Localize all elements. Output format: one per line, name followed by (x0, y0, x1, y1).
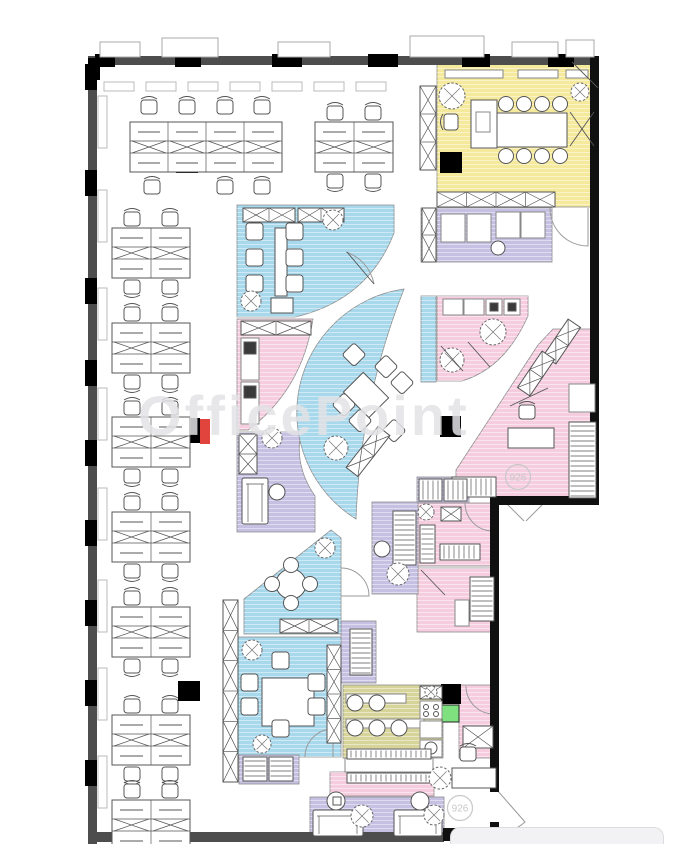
box-symbol (490, 303, 498, 311)
window (512, 42, 558, 57)
box-symbol (333, 797, 341, 805)
chair-seat (162, 564, 178, 578)
chair-back (124, 398, 140, 401)
column (85, 600, 97, 626)
chair-back (162, 493, 178, 496)
rack-symbol (420, 525, 435, 563)
chair-seat (272, 720, 289, 737)
sill (356, 82, 386, 91)
chair-symbol (217, 177, 233, 195)
chair-seat (254, 180, 270, 194)
cabinet-symbol (420, 701, 442, 719)
chair-seat (124, 784, 140, 798)
chair-back (254, 177, 270, 180)
chair-seat (444, 114, 458, 130)
column (85, 440, 97, 466)
chair-symbol (246, 249, 263, 266)
chair-symbol (124, 209, 140, 227)
rack-symbol (269, 757, 293, 781)
rack-outline (347, 773, 431, 783)
round-table-symbol (269, 484, 285, 500)
chair-seat (241, 698, 258, 715)
round-table-symbol (369, 720, 385, 736)
chair-seat (241, 674, 258, 691)
rack-symbol (569, 422, 596, 498)
door-swing (550, 208, 588, 246)
rack-symbol (347, 749, 431, 759)
chair-symbol (286, 249, 303, 266)
cabinet-symbol (496, 212, 520, 238)
chair-symbol (327, 174, 343, 192)
column (85, 520, 97, 546)
chair-back (365, 189, 381, 192)
chair-symbol (162, 564, 178, 582)
sill (146, 82, 176, 91)
box-symbol (508, 303, 516, 311)
chair-symbol (179, 97, 195, 115)
plant-icon (424, 805, 444, 825)
column (368, 54, 398, 67)
chair-back (124, 696, 140, 699)
chair-seat (124, 375, 140, 389)
shelf-strip-symbol (280, 619, 338, 633)
chair-seat (308, 674, 325, 691)
plant-icon (351, 805, 373, 827)
chair-symbol (124, 493, 140, 511)
chair-symbol (284, 558, 299, 573)
chair-symbol (162, 209, 178, 227)
chair-seat (327, 106, 343, 120)
cabinet-symbol (521, 212, 545, 238)
rack-symbol (470, 577, 494, 621)
chair-symbol (390, 371, 414, 395)
column (85, 680, 97, 706)
chair-symbol (124, 696, 140, 714)
chair-symbol (124, 469, 140, 487)
chair-symbol (141, 97, 157, 115)
plant-icon (425, 686, 437, 698)
sofa-outline (242, 478, 268, 524)
chair-symbol (162, 659, 178, 677)
chair-back (124, 304, 140, 307)
round-table-symbol (391, 720, 407, 736)
chair-back (327, 189, 343, 192)
round-table-symbol (434, 712, 439, 717)
room-shape-blue-shelf-strip (421, 296, 436, 382)
chair-seat (162, 767, 178, 781)
chair-back (124, 493, 140, 496)
chair-symbol (517, 97, 532, 112)
rack-symbol (347, 773, 431, 783)
sill (98, 190, 107, 242)
shelf-strip-symbol (223, 600, 238, 782)
sill (98, 756, 107, 808)
column (178, 681, 200, 701)
chair-symbol (286, 223, 303, 240)
chair-seat (179, 100, 195, 114)
round-table-symbol (347, 695, 363, 711)
round-table-symbol (434, 705, 439, 710)
chair-symbol (124, 659, 140, 677)
column (441, 684, 461, 704)
chair-seat (327, 174, 343, 188)
sill (98, 96, 107, 148)
cabinet-symbol (566, 70, 588, 78)
chair-symbol (162, 696, 178, 714)
chair-seat (162, 401, 178, 415)
cabinet-symbol (420, 721, 442, 738)
chair-back (327, 103, 343, 106)
cabinet-symbol (476, 112, 490, 132)
chair-symbol (327, 103, 343, 121)
rack-outline (419, 479, 442, 501)
chair-symbol (124, 398, 140, 416)
chair-symbol (246, 223, 263, 240)
sill (98, 668, 107, 720)
chair-back (162, 579, 178, 582)
chair-symbol (162, 280, 178, 298)
box-symbol (244, 386, 256, 398)
badge-text: 926 (510, 473, 527, 484)
chair-seat (365, 174, 381, 188)
round-table-symbol (374, 541, 390, 557)
shelf-strip-symbol (243, 208, 295, 222)
rack-outline (269, 757, 293, 781)
chair-seat (124, 564, 140, 578)
table-symbol (452, 768, 496, 788)
cabinet-symbol (467, 214, 491, 242)
chair-symbol (303, 577, 318, 592)
sofa-symbol (242, 478, 268, 524)
chair-symbol (535, 97, 550, 112)
badge-text: 926 (452, 804, 469, 815)
chair-symbol (217, 97, 233, 115)
shelf-strip-symbol (420, 86, 436, 170)
sill (272, 82, 302, 91)
plant-icon (480, 319, 506, 345)
cabinet-symbol (518, 70, 558, 78)
desk-cluster (112, 800, 190, 844)
chair-symbol (308, 698, 325, 715)
chair-seat (124, 767, 140, 781)
chair-seat (246, 249, 263, 266)
chair-seat (162, 784, 178, 798)
rack-outline (393, 511, 416, 565)
plant-icon (241, 291, 261, 311)
chair-back (124, 674, 140, 677)
chair-back (162, 209, 178, 212)
cabinet-symbol (443, 299, 463, 315)
rack-symbol (440, 544, 480, 560)
chair-back (162, 696, 178, 699)
chair-back (162, 304, 178, 307)
chair-symbol (365, 103, 381, 121)
shelf-strip-symbol (239, 434, 257, 474)
chair-seat (254, 100, 270, 114)
cabinet-symbol (464, 299, 484, 315)
round-table-symbol (424, 712, 429, 717)
plant-icon (439, 83, 465, 109)
chair-seat (217, 180, 233, 194)
chair-symbol (308, 674, 325, 691)
chair-symbol (124, 564, 140, 582)
desk-cluster (112, 323, 190, 373)
round-table-symbol (369, 695, 385, 711)
chair-back (124, 390, 140, 393)
chair-seat (124, 496, 140, 510)
chair-symbol (246, 275, 263, 292)
sill (98, 388, 107, 440)
shelf-strip-symbol (241, 321, 311, 335)
room-blue-shelf-strip[interactable] (421, 296, 436, 382)
sill (104, 82, 134, 91)
chair-seat (124, 401, 140, 415)
chair-symbol (499, 149, 514, 164)
chair-symbol (286, 275, 303, 292)
cabinet-symbol (345, 758, 433, 772)
chair-seat (162, 591, 178, 605)
rack-outline (243, 757, 267, 781)
chair-seat (246, 223, 263, 240)
shelf-strip-symbol (327, 645, 341, 743)
plant-icon (324, 436, 348, 460)
chair-seat (162, 469, 178, 483)
table-symbol (271, 298, 293, 313)
chair-seat (124, 307, 140, 321)
chair-back (179, 97, 195, 100)
rack-outline (569, 422, 596, 498)
cabinet-symbol (455, 600, 469, 626)
chair-seat (286, 275, 303, 292)
desk-cluster (112, 715, 190, 765)
rack-symbol (444, 479, 467, 501)
floor-plan: 926926 OfficePoint (0, 0, 680, 844)
column (440, 152, 462, 173)
chair-seat (124, 212, 140, 226)
chair-seat (286, 223, 303, 240)
box-symbol (244, 342, 256, 354)
plant-icon (418, 504, 434, 520)
column (85, 760, 97, 786)
chair-seat (124, 659, 140, 673)
door-swing (341, 568, 369, 596)
chair-symbol (162, 588, 178, 606)
chair-symbol (272, 652, 289, 669)
chair-symbol (254, 97, 270, 115)
sill (188, 82, 218, 91)
chair-symbol (124, 304, 140, 322)
chair-symbol (162, 304, 178, 322)
chair-symbol (254, 177, 270, 195)
chair-seat (141, 100, 157, 114)
window (100, 42, 140, 57)
chair-seat (162, 307, 178, 321)
plant-icon (429, 767, 451, 789)
chair-seat (308, 698, 325, 715)
chair-symbol (535, 149, 550, 164)
chair-symbol (499, 97, 514, 112)
chair-seat (460, 747, 476, 761)
floor-plan-svg: 926926 (0, 0, 680, 844)
chair-seat (124, 591, 140, 605)
rack-symbol (419, 479, 442, 501)
green-unit (442, 705, 459, 722)
rack-symbol (243, 757, 267, 781)
chair-symbol (124, 375, 140, 393)
sill (98, 488, 107, 540)
chair-symbol (241, 674, 258, 691)
chair-symbol (365, 174, 381, 192)
chair-back (141, 97, 157, 100)
desk-cluster (112, 512, 190, 562)
round-table-symbol (424, 705, 429, 710)
cabinet-symbol (441, 214, 465, 242)
desk-cluster (315, 122, 393, 172)
chair-seat (124, 280, 140, 294)
table-symbol (275, 228, 287, 296)
chair-symbol (517, 149, 532, 164)
bottom-sheet[interactable] (450, 827, 664, 844)
rack-outline (347, 749, 431, 759)
plant-icon (242, 640, 262, 660)
chair-back (162, 390, 178, 393)
room-number-badge: 926 (448, 796, 473, 821)
chair-seat (162, 699, 178, 713)
table-symbol (262, 678, 314, 726)
chair-seat (272, 652, 289, 669)
chair-back (144, 177, 160, 180)
round-table-symbol (347, 720, 363, 736)
chair-seat (365, 106, 381, 120)
column (85, 64, 97, 90)
chair-back (124, 484, 140, 487)
crate-symbol (463, 726, 493, 748)
chair-symbol (124, 280, 140, 298)
chair-symbol (553, 149, 568, 164)
window (278, 42, 330, 57)
chair-symbol (553, 97, 568, 112)
round-table-symbol (276, 569, 306, 599)
rack-symbol (393, 511, 416, 565)
plant-icon (323, 210, 343, 230)
table-symbol (508, 428, 554, 448)
chair-back (217, 97, 233, 100)
chair-symbol (162, 375, 178, 393)
window (410, 36, 484, 57)
shelf-strip-symbol (437, 192, 555, 207)
round-table-symbol (411, 792, 429, 810)
chair-symbol (284, 596, 299, 611)
window (566, 40, 594, 57)
chair-back (365, 103, 381, 106)
plant-icon (253, 735, 271, 753)
round-table-symbol (491, 241, 505, 255)
plant-icon (262, 428, 282, 448)
plant-icon (315, 538, 335, 558)
rack-outline (444, 479, 467, 501)
cabinet-symbol (569, 384, 595, 412)
chair-seat (162, 212, 178, 226)
rack-outline (470, 577, 494, 621)
chair-seat (162, 280, 178, 294)
rack-symbol (350, 629, 372, 675)
chair-seat (144, 180, 160, 194)
crate-symbol (441, 507, 461, 521)
chair-symbol (144, 177, 160, 195)
chair-back (162, 398, 178, 401)
chair-back (124, 209, 140, 212)
chair-symbol (162, 398, 178, 416)
chair-seat (162, 496, 178, 510)
desk-cluster (112, 228, 190, 278)
column (440, 416, 461, 437)
desk-cluster (112, 417, 190, 467)
window (162, 38, 218, 57)
chair-symbol (265, 577, 280, 592)
chair-back (124, 579, 140, 582)
chair-seat (124, 699, 140, 713)
chair-seat (124, 469, 140, 483)
sill (98, 288, 107, 340)
chair-back (162, 295, 178, 298)
plant-icon (571, 83, 589, 101)
column (85, 170, 97, 196)
table-symbol (497, 113, 567, 147)
sill (230, 82, 260, 91)
chair-seat (246, 275, 263, 292)
plant-icon (387, 563, 409, 585)
column (85, 360, 97, 386)
chair-back (162, 674, 178, 677)
fire-cabinet (200, 419, 210, 444)
chair-back (162, 484, 178, 487)
chair-back (124, 295, 140, 298)
chair-back (217, 177, 233, 180)
chair-symbol (162, 493, 178, 511)
column (85, 278, 97, 304)
shelf-strip-symbol (422, 208, 436, 262)
desk-cluster (130, 122, 282, 172)
chair-symbol (124, 588, 140, 606)
sill (98, 580, 107, 632)
sill (314, 82, 344, 91)
chair-seat (162, 659, 178, 673)
chair-seat (217, 100, 233, 114)
chair-seat (286, 249, 303, 266)
chair-symbol (241, 698, 258, 715)
chair-back (254, 97, 270, 100)
chair-seat (519, 405, 535, 419)
chair-seat (162, 375, 178, 389)
chair-seat (390, 371, 414, 395)
chair-symbol (162, 469, 178, 487)
chair-back (124, 588, 140, 591)
chair-symbol (272, 720, 289, 737)
desk-cluster (112, 607, 190, 657)
chair-back (162, 588, 178, 591)
cabinet-symbol (445, 70, 503, 78)
